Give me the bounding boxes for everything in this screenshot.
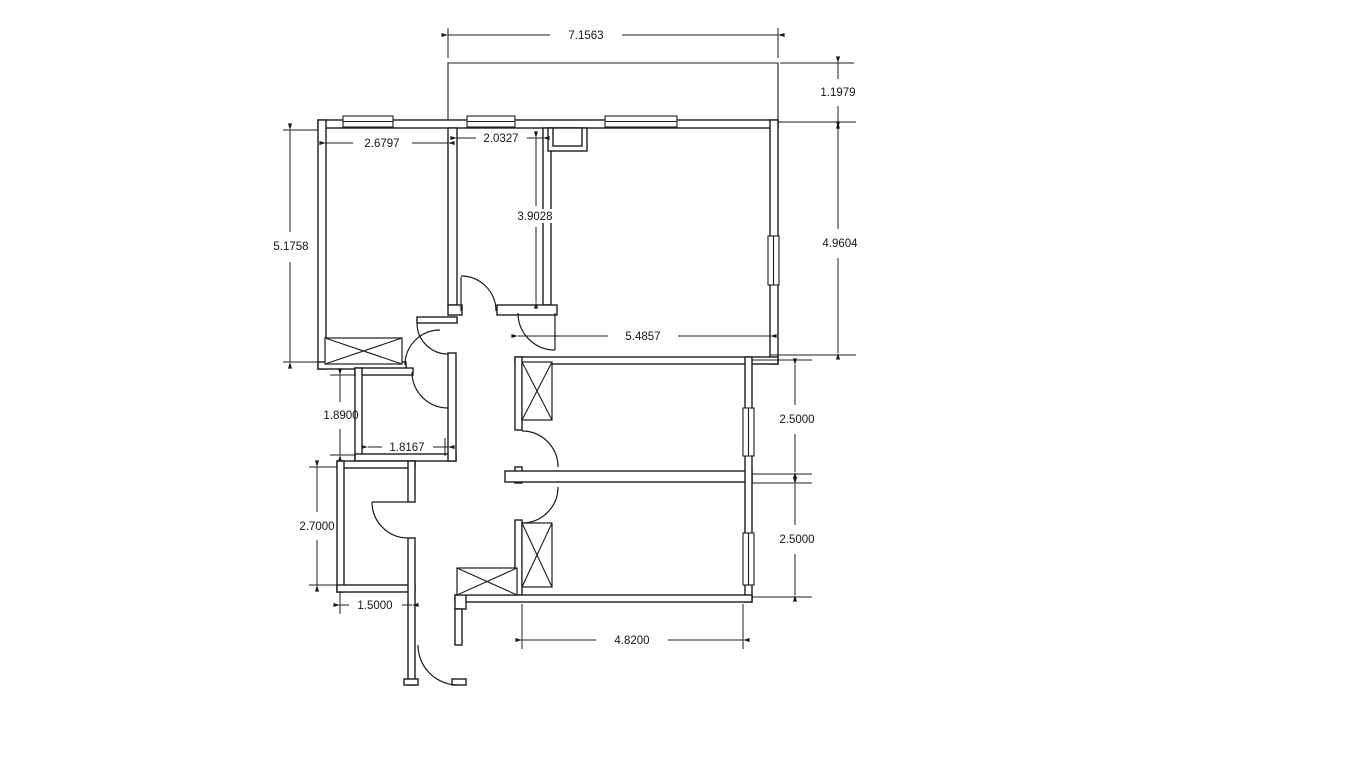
dim-label-wc-height: 2.7000	[299, 521, 334, 533]
wall-bath-bottom	[355, 454, 456, 461]
wall-room1-room2-divider	[448, 128, 457, 305]
door-room1	[405, 330, 440, 365]
wall-bottom-jog	[455, 595, 466, 609]
dim-bath-width: 1.8167	[368, 438, 448, 456]
window-living-right	[768, 236, 779, 285]
wall-entry-foot-left	[404, 679, 418, 685]
wall-wc-bottom	[337, 585, 415, 592]
wall-duct-notch-inner	[553, 128, 582, 146]
wall-bath-top	[355, 368, 413, 375]
wall-bath-right	[448, 353, 456, 461]
dim-label-bedroom2-height: 2.5000	[779, 534, 814, 546]
wall-corridor-right	[455, 609, 462, 645]
dim-label-living-width: 5.4857	[625, 331, 660, 343]
floor-plan-page: 7.1563 1.1979 5.1758 2.6797 2.0327	[0, 0, 1366, 768]
wall-corridor-left-lower	[408, 538, 415, 685]
wall-divider-jog	[448, 305, 462, 315]
door-wc	[372, 502, 408, 538]
closet-box-bedroom2	[522, 523, 552, 587]
closet-box-hall	[457, 568, 517, 595]
door-bedroom2	[522, 487, 558, 523]
dim-label-left-wing-height: 5.1758	[273, 241, 308, 253]
wall-wc-left	[337, 461, 344, 592]
dim-label-room1-width: 2.6797	[364, 138, 399, 150]
wall-hall-stub	[417, 317, 457, 323]
window-room1-top	[343, 116, 393, 127]
balcony-outline	[448, 63, 778, 120]
dim-wc-height: 2.7000	[299, 467, 337, 585]
wall-living-bottom	[515, 357, 778, 364]
dim-living-width: 5.4857	[518, 331, 770, 343]
dim-label-balcony-depth: 1.1979	[820, 87, 855, 99]
dim-bath-height: 1.8900	[323, 375, 358, 455]
dim-left-wing-height: 5.1758	[273, 130, 318, 362]
window-room2-top	[467, 116, 515, 127]
wall-bedrooms-bottom	[455, 595, 752, 602]
closet-box-room1	[325, 338, 402, 364]
dim-label-bedroom1-height: 2.5000	[779, 414, 814, 426]
dim-label-bath-height: 1.8900	[323, 410, 358, 422]
dim-living-height: 4.9604	[770, 128, 858, 355]
door-living-room	[518, 313, 555, 350]
door-hall-passage	[417, 323, 448, 354]
dim-label-bedrooms-width: 4.8200	[614, 635, 649, 647]
wall-left	[318, 120, 326, 369]
wall-hall-bedrooms-a	[515, 357, 522, 430]
floor-plan-canvas: 7.1563 1.1979 5.1758 2.6797 2.0327	[0, 0, 1366, 768]
dim-balcony-depth: 1.1979	[778, 63, 856, 122]
window-living-top	[605, 116, 677, 127]
door-bedroom1	[522, 431, 558, 467]
dim-bedroom1-height: 2.5000	[752, 360, 815, 474]
dim-label-balcony-width: 7.1563	[568, 30, 603, 42]
dim-bedrooms-width: 4.8200	[522, 604, 743, 649]
dim-bedroom2-height: 2.5000	[752, 483, 815, 597]
wall-bedroom-divider	[505, 471, 752, 482]
dim-label-room2-width: 2.0327	[483, 133, 518, 145]
closet-box-bedroom1	[522, 362, 552, 420]
wall-entry-foot-right	[452, 679, 466, 685]
wall-room2-bottom	[497, 305, 557, 315]
dim-room2-width: 2.0327	[457, 133, 543, 145]
dim-label-room2-height: 3.9028	[517, 211, 552, 223]
dim-label-bath-width: 1.8167	[389, 442, 424, 454]
window-bedroom1-right	[743, 408, 754, 456]
door-room2	[461, 276, 496, 311]
dim-label-wc-width: 1.5000	[357, 600, 392, 612]
wall-wc-top	[337, 461, 415, 468]
dim-room1-width: 2.6797	[326, 138, 448, 150]
dim-balcony-width: 7.1563	[448, 28, 778, 58]
wall-corridor-left-upper	[408, 461, 415, 502]
window-bedroom2-right	[743, 533, 754, 585]
dim-wc-width: 1.5000	[340, 592, 412, 614]
door-bathroom	[412, 372, 448, 408]
dim-label-living-height: 4.9604	[822, 238, 858, 250]
